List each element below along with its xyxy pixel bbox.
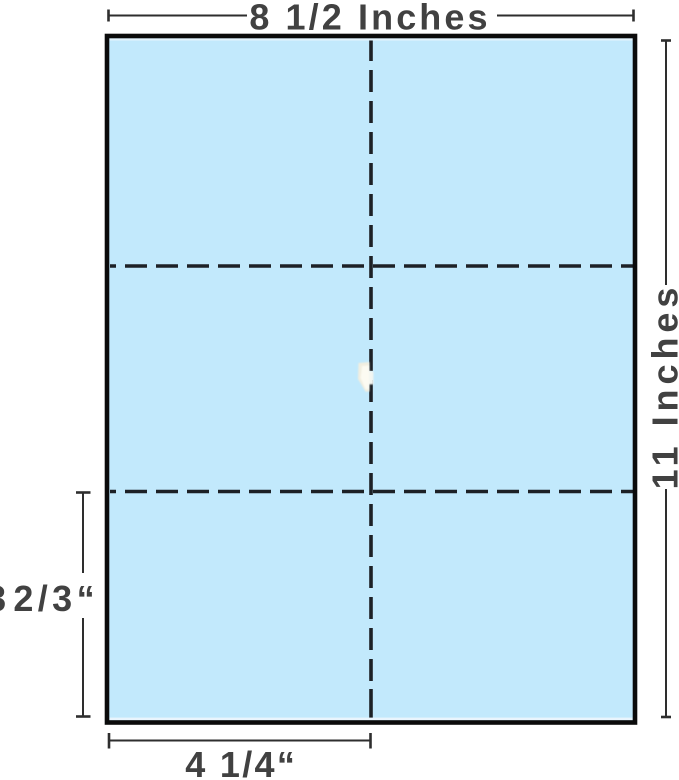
svg-text:8 1/2 Inches: 8 1/2 Inches — [249, 0, 490, 38]
svg-text:4 1/4“: 4 1/4“ — [185, 744, 297, 780]
svg-text:11 Inches: 11 Inches — [645, 283, 679, 490]
svg-text:3 2/3“: 3 2/3“ — [0, 578, 99, 619]
